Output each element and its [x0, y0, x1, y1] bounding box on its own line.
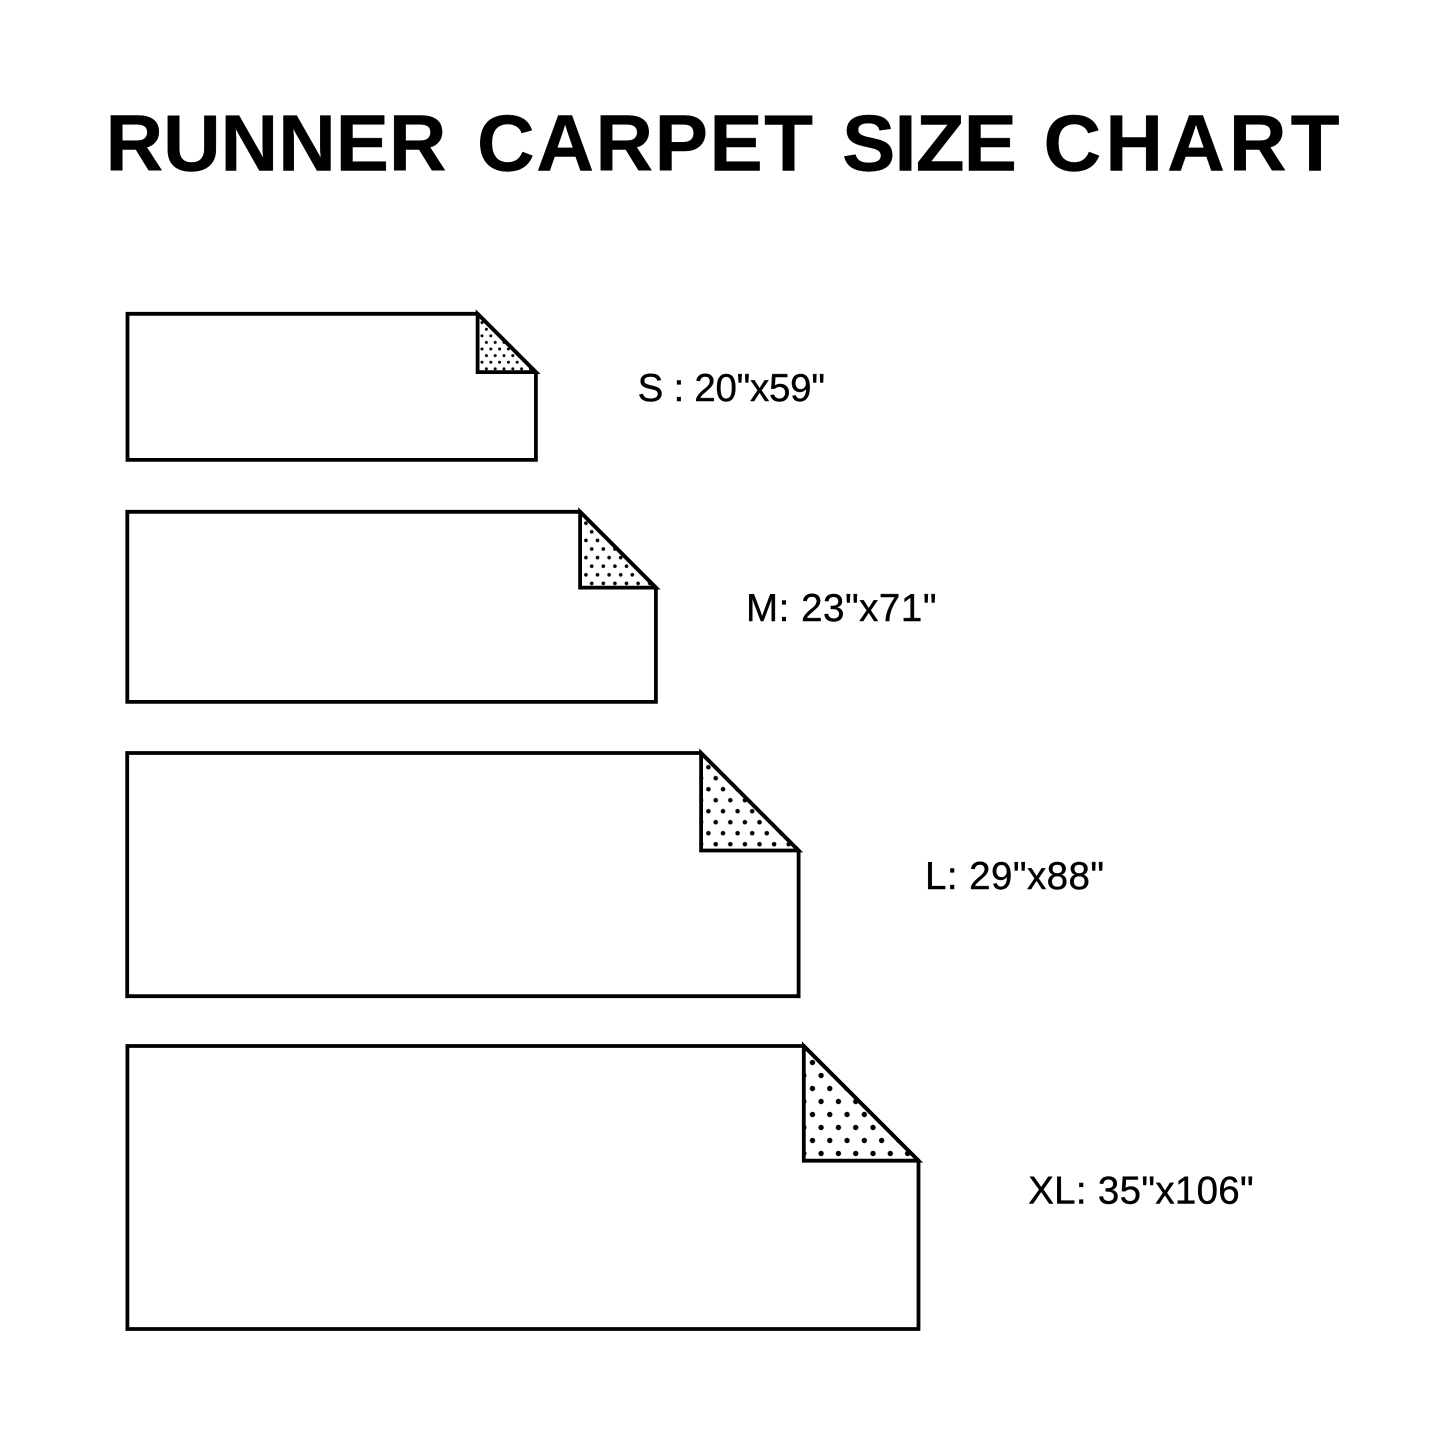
svg-text:S : 20"x59": S : 20"x59"	[638, 367, 825, 410]
svg-text:RUNNERCARPETSIZECHART: RUNNERCARPETSIZECHART	[106, 99, 1340, 188]
svg-text:L: 29"x88": L: 29"x88"	[925, 855, 1104, 898]
svg-text:M: 23"x71": M: 23"x71"	[746, 587, 937, 630]
svg-text:XL: 35"x106": XL: 35"x106"	[1028, 1169, 1254, 1212]
